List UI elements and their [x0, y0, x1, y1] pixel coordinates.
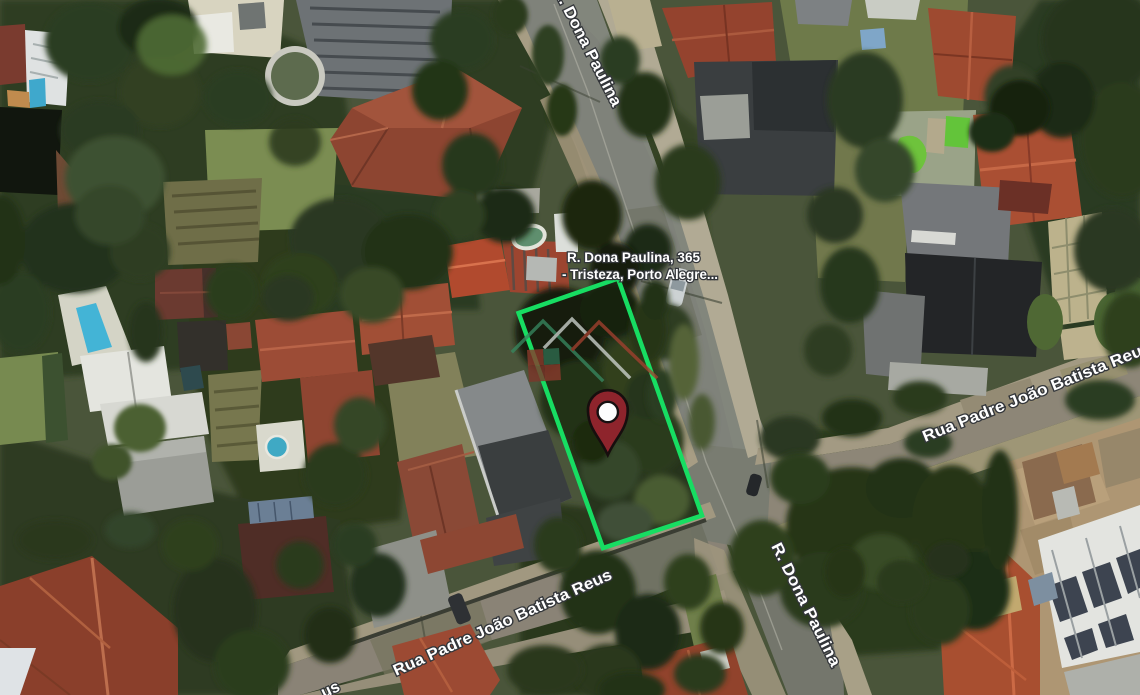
- svg-text:R. Dona Paulina, 365: R. Dona Paulina, 365: [567, 249, 700, 265]
- svg-text:- Tristeza, Porto Alegre...: - Tristeza, Porto Alegre...: [562, 266, 718, 282]
